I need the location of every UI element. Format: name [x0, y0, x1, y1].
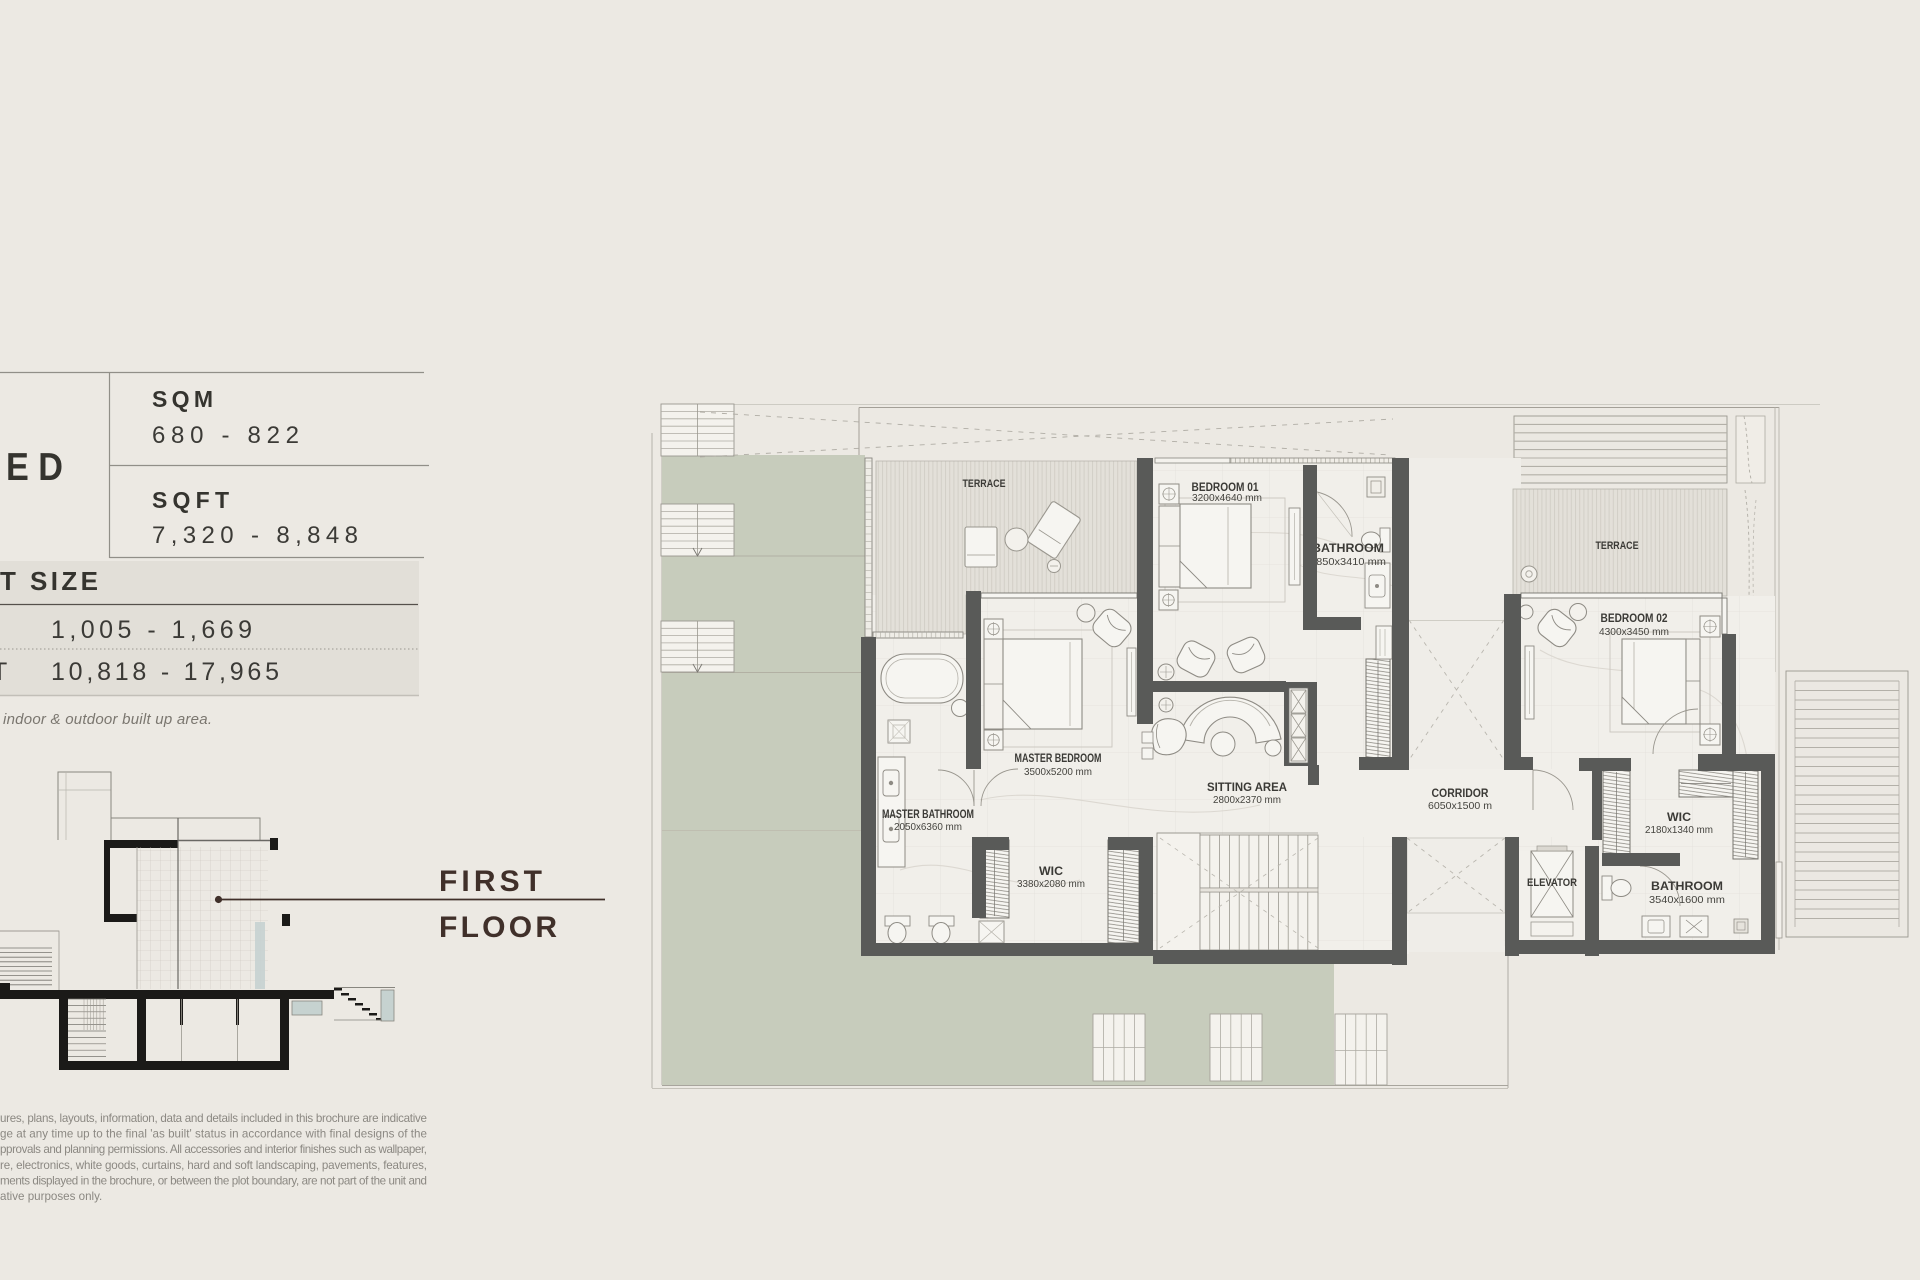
svg-text:ative purposes only.: ative purposes only. [0, 1190, 102, 1203]
svg-text:7,320 - 8,848: 7,320 - 8,848 [152, 522, 358, 549]
svg-text:BATHROOM: BATHROOM [1312, 541, 1384, 555]
svg-text:FIRST: FIRST [439, 865, 542, 898]
svg-text:3380x2080 mm: 3380x2080 mm [1017, 878, 1085, 890]
svg-text:3540x1600 mm: 3540x1600 mm [1649, 894, 1725, 906]
svg-text:CORRIDOR: CORRIDOR [1432, 786, 1489, 800]
svg-text:SQM: SQM [152, 386, 213, 412]
svg-text:pprovals and planning permissi: pprovals and planning permissions. All a… [0, 1143, 427, 1156]
svg-text:2800x2370 mm: 2800x2370 mm [1213, 794, 1281, 806]
svg-text:BEDROOM 02: BEDROOM 02 [1601, 611, 1668, 625]
svg-text:ELEVATOR: ELEVATOR [1527, 877, 1577, 889]
svg-text:WIC: WIC [1039, 864, 1063, 878]
svg-text:SITTING AREA: SITTING AREA [1207, 780, 1287, 794]
svg-text:WIC: WIC [1667, 810, 1691, 824]
svg-text:TERRACE: TERRACE [1596, 540, 1639, 552]
svg-text:re, electronics, white goods,: re, electronics, white goods, curtains, … [0, 1159, 427, 1172]
svg-text:4300x3450 mm: 4300x3450 mm [1599, 626, 1669, 638]
svg-text:FLOOR: FLOOR [439, 911, 557, 944]
svg-text:3200x4640 mm: 3200x4640 mm [1192, 492, 1262, 504]
svg-text:MASTER BATHROOM: MASTER BATHROOM [882, 807, 974, 821]
svg-text:2050x6360 mm: 2050x6360 mm [894, 821, 962, 833]
svg-text:ments displayed in the brochur: ments displayed in the brochure, or betw… [0, 1174, 427, 1187]
svg-text:1850x3410 mm: 1850x3410 mm [1310, 556, 1386, 568]
svg-text:E D: E D [6, 446, 63, 489]
svg-text:BATHROOM: BATHROOM [1651, 879, 1723, 893]
svg-text:T: T [0, 658, 7, 686]
svg-text:ures, plans, layouts, informat: ures, plans, layouts, information, data … [0, 1112, 427, 1125]
svg-text:MASTER BEDROOM: MASTER BEDROOM [1015, 751, 1102, 765]
svg-text:ge at any time up to the final: ge at any time up to the final 'as built… [0, 1128, 427, 1141]
svg-text:indoor & outdoor built up area: indoor & outdoor built up area. [3, 711, 212, 728]
svg-text:2180x1340 mm: 2180x1340 mm [1645, 824, 1713, 836]
svg-text:6050x1500 m: 6050x1500 m [1428, 800, 1492, 812]
svg-text:TERRACE: TERRACE [963, 478, 1006, 490]
svg-text:3500x5200 mm: 3500x5200 mm [1024, 766, 1092, 778]
svg-text:1,005 - 1,669: 1,005 - 1,669 [51, 616, 252, 644]
svg-text:680 - 822: 680 - 822 [152, 422, 299, 449]
